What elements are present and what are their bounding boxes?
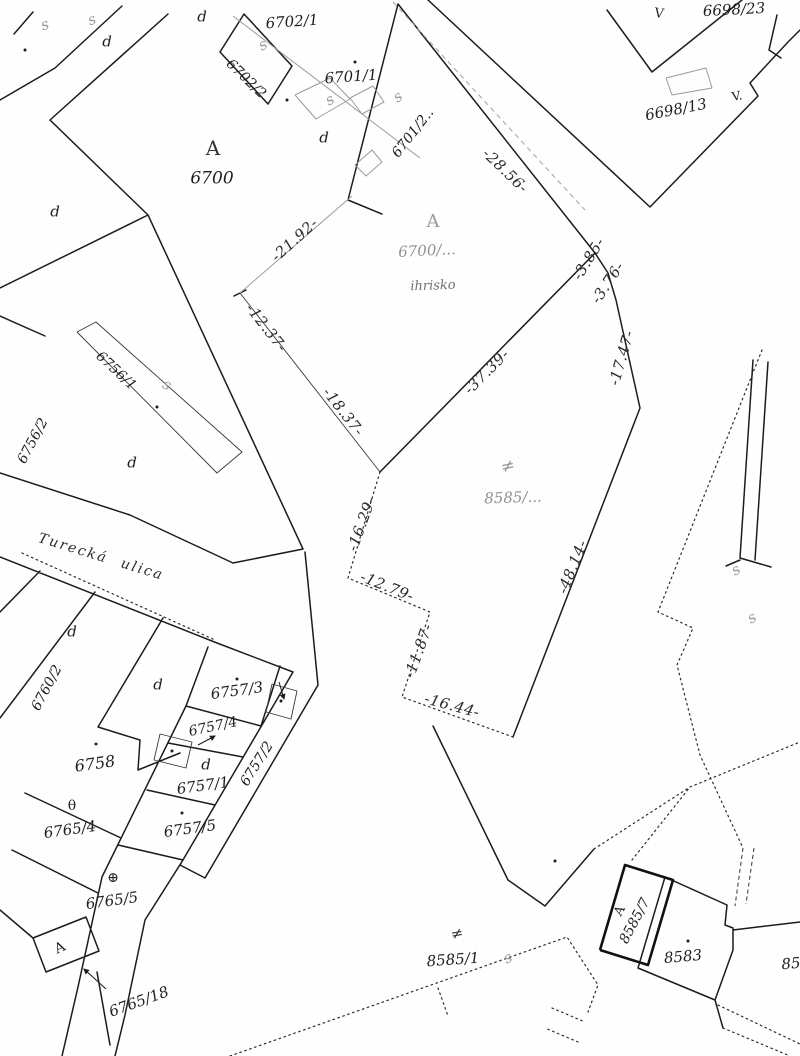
parcel-label-6700: 6700 — [190, 171, 233, 188]
letter-label-d: d — [197, 10, 207, 25]
map-symbol-a: A — [206, 138, 220, 158]
survey-point-dot — [687, 940, 690, 943]
letter-label-d: d — [153, 678, 163, 693]
letter-label-d: d — [67, 625, 77, 640]
survey-point-dot — [280, 700, 283, 703]
parcel-label-85: 85 — [781, 956, 800, 973]
parcel-label-6700: 6700/... — [398, 242, 456, 260]
survey-point-dot — [171, 750, 174, 753]
parcel-label-8585: 8585/... — [484, 490, 542, 507]
map-symbol-v: V. — [731, 89, 743, 103]
faint-building-outlines — [233, 16, 712, 293]
survey-point-dot — [95, 743, 98, 746]
map-symbol-a: A — [427, 213, 440, 231]
survey-point-dot — [236, 678, 239, 681]
parcel-label-6698-23: 6698/23 — [702, 1, 765, 19]
parcel-label-8585-1: 8585/1 — [426, 951, 480, 970]
parcel-label-6701-1: 6701/1 — [324, 68, 378, 87]
letter-label-d: d — [319, 131, 329, 146]
survey-point-dot — [354, 61, 357, 64]
survey-point-dot — [24, 49, 27, 52]
map-symbol-x: θ — [68, 799, 76, 813]
letter-label-d: d — [201, 758, 211, 773]
parcel-label-8583: 8583 — [663, 948, 702, 966]
survey-point-dot — [181, 812, 184, 815]
letter-label-d: d — [102, 35, 112, 50]
map-symbol-x: ≠ — [450, 926, 465, 943]
map-symbol-x: ⊕ — [107, 871, 119, 885]
parcel-label-ihrisko: ihrisko — [410, 279, 456, 294]
letter-label-d: d — [127, 456, 137, 471]
survey-point-dot — [554, 860, 557, 863]
dashed-utility-lines — [735, 848, 754, 906]
cadastral-map-canvas: 6702/16702/26701/16701/2..67006698/23669… — [0, 0, 800, 1056]
survey-point-dot — [156, 406, 159, 409]
parcel-label-6702-1: 6702/1 — [265, 13, 319, 32]
map-symbol-v: V — [653, 7, 664, 21]
survey-point-dot — [286, 99, 289, 102]
letter-label-d: d — [50, 205, 60, 220]
